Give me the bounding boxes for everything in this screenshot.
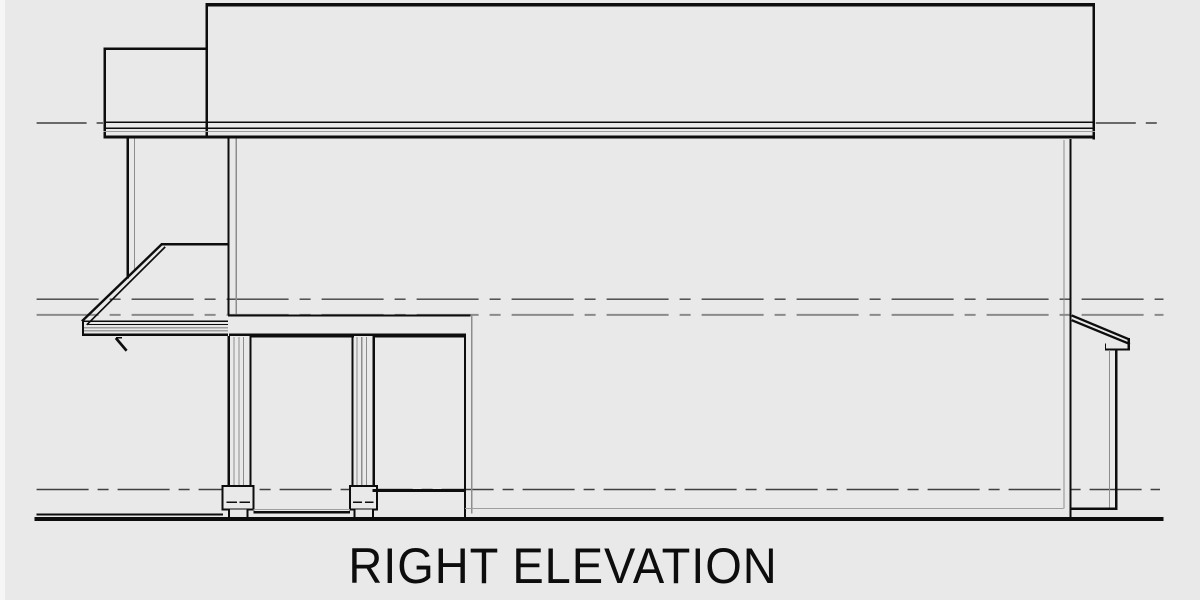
roof-ridge-edge <box>205 3 1095 6</box>
column-edge <box>373 336 375 486</box>
opening-sill-line <box>373 489 466 492</box>
column-flute <box>234 337 235 486</box>
column-flute <box>238 337 239 486</box>
fascia-shadow-line <box>103 131 1095 132</box>
base-molding <box>226 502 236 503</box>
plinth-edge <box>372 510 374 518</box>
awning-slope-lower <box>1072 320 1130 344</box>
shed-fascia-bottom-line <box>82 333 228 335</box>
upper-floor-band <box>228 315 471 336</box>
base-molding <box>239 502 249 503</box>
ground-line <box>35 517 1164 521</box>
column-flute <box>366 337 367 486</box>
column-flute <box>243 337 244 486</box>
shed-roof-bracket <box>116 338 127 351</box>
roof-right-edge <box>1092 3 1095 140</box>
roof-step-left-edge <box>103 47 106 138</box>
awning-post-inner-line <box>1109 350 1110 508</box>
shed-fascia-top-line <box>82 320 228 322</box>
grade-lines <box>35 508 1164 521</box>
porch-grade-line <box>37 513 223 515</box>
roof-step-top-edge <box>103 47 207 49</box>
upper-wall-trim-line <box>236 139 237 315</box>
upper-roof <box>103 3 1095 140</box>
upper-post-outer-line <box>127 139 129 279</box>
opening-head-line <box>373 335 466 338</box>
shed-roof-ridge-line <box>161 243 228 245</box>
upper-post-inner-line <box>134 139 135 271</box>
shed-fascia-shadow-line-1 <box>84 327 228 328</box>
porch-floor-edge-line <box>254 511 350 513</box>
drawing-title-text: RIGHT ELEVATION <box>348 538 777 594</box>
opening-head-line <box>249 335 353 338</box>
level-reference-lines <box>37 123 1164 490</box>
page-edge <box>0 0 5 600</box>
porch-floor-shadow-line <box>254 509 350 510</box>
porch-column-left <box>228 336 252 486</box>
shed-fascia-shadow-line-2 <box>84 330 228 331</box>
column-edge <box>228 336 230 486</box>
base-block <box>223 486 254 510</box>
fascia-bottom-line <box>103 135 1095 138</box>
foundation-line <box>465 508 1063 509</box>
base-molding <box>365 502 374 503</box>
wall-corner-outer-line <box>464 336 466 519</box>
band-top-line <box>228 315 471 317</box>
awning-post-outer-line <box>1115 351 1117 509</box>
roof-left-edge <box>205 3 208 139</box>
column-base-left <box>223 486 254 517</box>
stoop-floor-line <box>1072 508 1118 510</box>
plinth-edge <box>228 510 230 518</box>
right-wall-corner-line <box>1069 139 1071 521</box>
roof-fascia <box>103 121 1095 138</box>
base-molding <box>353 502 362 503</box>
drawing-title: RIGHT ELEVATION <box>348 540 777 593</box>
right-wall <box>1063 139 1071 521</box>
second-floor-porch-post <box>127 139 237 315</box>
column-edge <box>352 336 354 486</box>
awning-slope-upper <box>1072 315 1129 339</box>
elevation-drawing-sheet: RIGHT ELEVATION <box>0 0 1200 600</box>
porch-shed-roof <box>82 243 228 351</box>
shed-roof-slope-outer <box>82 244 162 321</box>
awning-soffit-line <box>1105 348 1130 350</box>
rear-awning <box>1072 315 1130 509</box>
column-edge <box>249 336 251 486</box>
column-flute <box>361 337 362 486</box>
right-wall-inner-line <box>1063 140 1064 509</box>
fascia-top-line <box>103 121 1095 123</box>
first-floor-wall-corner <box>464 315 473 519</box>
wall-corner-inner-line <box>471 315 472 514</box>
upper-wall-corner-line <box>228 139 230 315</box>
awning-beam-end <box>1105 344 1106 351</box>
fascia-trim-line <box>103 128 1095 129</box>
shed-roof-slope-inner <box>87 247 165 325</box>
porch-column-middle <box>352 336 375 486</box>
plinth <box>353 510 374 518</box>
plinth-edge <box>247 510 249 518</box>
elevation-linework <box>0 0 1200 600</box>
column-flute <box>356 337 357 486</box>
plinth-edge <box>353 510 355 518</box>
shed-fascia-trim-line <box>87 324 228 325</box>
plinth <box>228 510 249 518</box>
